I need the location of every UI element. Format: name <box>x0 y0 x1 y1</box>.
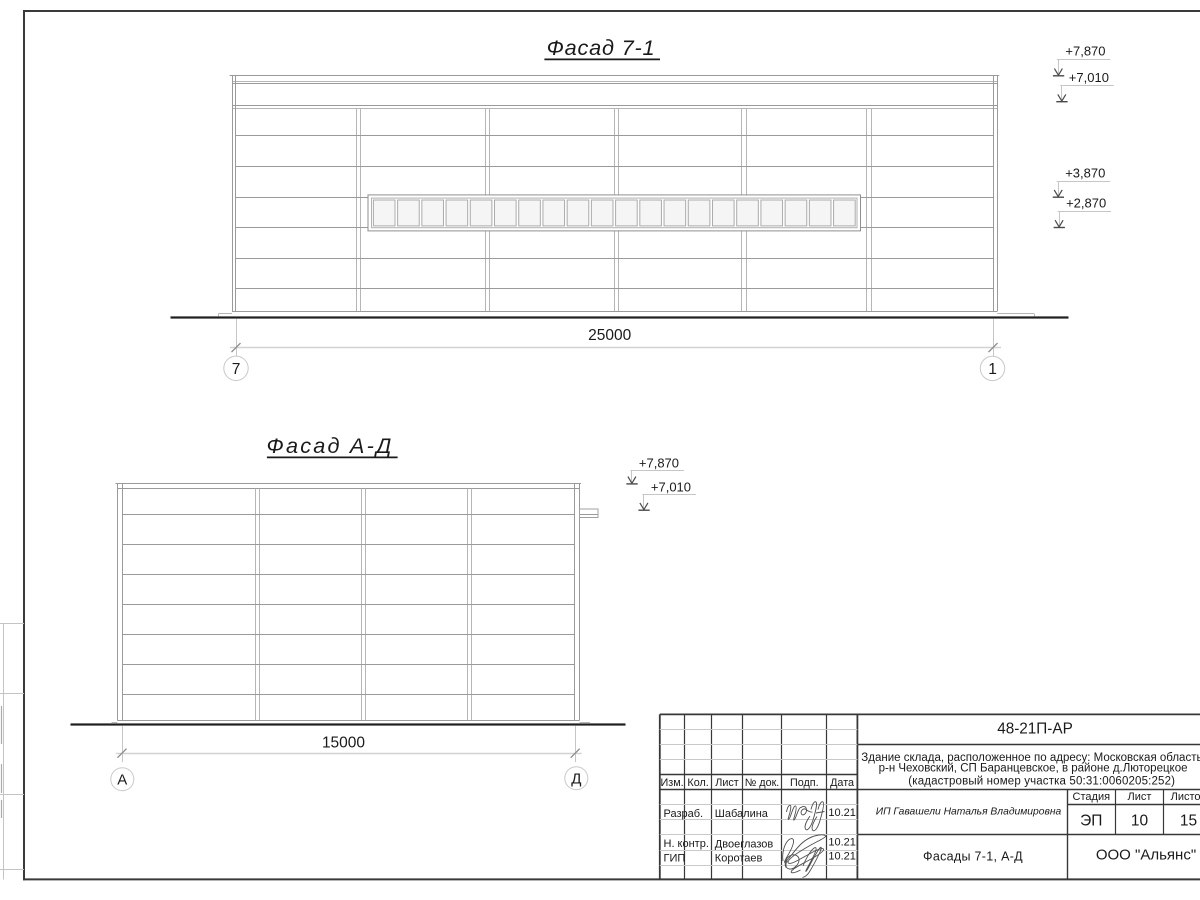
svg-text:15000: 15000 <box>322 735 365 752</box>
svg-text:1: 1 <box>988 361 997 378</box>
svg-text:10.21: 10.21 <box>828 836 856 848</box>
svg-text:Подп.: Подп. <box>790 777 819 789</box>
svg-text:Изм.: Изм. <box>661 777 684 789</box>
svg-text:+3,870: +3,870 <box>1065 166 1105 181</box>
svg-text:ИП Гавашели Наталья Владимиров: ИП Гавашели Наталья Владимировна <box>876 807 1062 818</box>
svg-text:Стадия: Стадия <box>1073 791 1111 803</box>
svg-text:10.21: 10.21 <box>828 850 856 862</box>
svg-text:Лист: Лист <box>1128 791 1152 803</box>
svg-text:Двоеглазов: Двоеглазов <box>715 839 774 851</box>
svg-text:ГИП: ГИП <box>664 853 686 865</box>
svg-text:+7,870: +7,870 <box>1065 44 1105 59</box>
svg-text:ЭП: ЭП <box>1080 813 1102 830</box>
svg-text:ООО "Альянс": ООО "Альянс" <box>1096 847 1196 864</box>
svg-text:Фасад 7-1: Фасад 7-1 <box>547 35 656 60</box>
svg-text:Фасады 7-1, А-Д: Фасады 7-1, А-Д <box>923 850 1023 864</box>
svg-text:10.21: 10.21 <box>828 807 856 819</box>
svg-text:+7,870: +7,870 <box>639 455 679 470</box>
svg-text:Н. контр.: Н. контр. <box>664 838 709 850</box>
svg-text:Листов: Листов <box>1171 791 1200 803</box>
svg-text:Лист: Лист <box>715 777 739 789</box>
svg-text:+7,010: +7,010 <box>1069 70 1109 85</box>
svg-text:(кадастровый номер участка 50:: (кадастровый номер участка 50:31:0060205… <box>908 775 1175 787</box>
svg-text:Разраб.: Разраб. <box>664 808 704 820</box>
svg-text:+7,010: +7,010 <box>651 479 691 494</box>
svg-text:Фасад А-Д: Фасад А-Д <box>267 433 394 458</box>
svg-text:Шабалина: Шабалина <box>715 808 769 820</box>
svg-text:+2,870: +2,870 <box>1066 196 1106 211</box>
svg-text:Кол.: Кол. <box>687 777 708 789</box>
svg-text:№ док.: № док. <box>745 777 780 789</box>
svg-text:10: 10 <box>1131 813 1149 830</box>
svg-text:Д: Д <box>571 771 581 788</box>
svg-text:25000: 25000 <box>588 327 631 344</box>
svg-text:7: 7 <box>232 361 241 378</box>
svg-text:А: А <box>117 772 127 789</box>
svg-text:Коротаев: Коротаев <box>715 853 763 865</box>
svg-text:р-н Чеховский, СП Баранцевское: р-н Чеховский, СП Баранцевское, в районе… <box>879 763 1188 775</box>
svg-text:15: 15 <box>1180 813 1197 830</box>
svg-text:Дата: Дата <box>830 777 854 789</box>
svg-text:48-21П-АР: 48-21П-АР <box>997 721 1073 738</box>
